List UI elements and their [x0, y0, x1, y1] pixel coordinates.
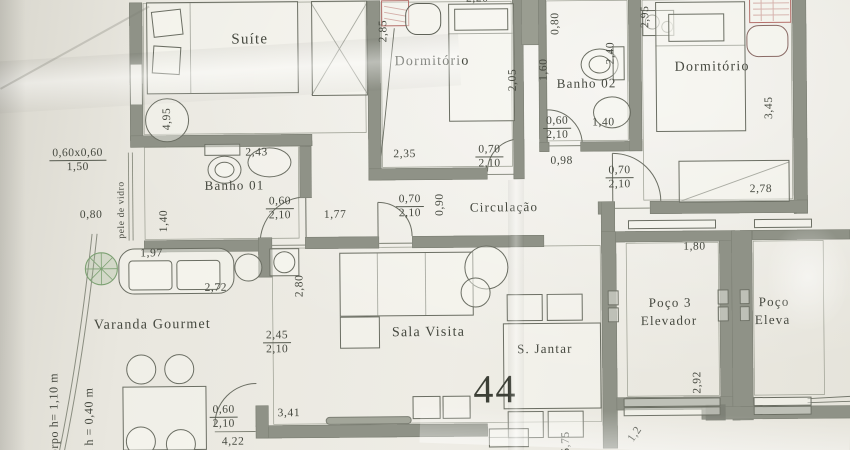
dim-sala-left: 2,80	[293, 275, 305, 298]
dim-dorm2-left-top: 2,95	[639, 5, 651, 28]
dim-value: 0,60	[543, 115, 571, 129]
dim-value: 2,10	[543, 129, 571, 142]
tree-symbol	[85, 253, 117, 285]
dim-value: 2,10	[210, 418, 238, 431]
room-label-poco3-line1: Poço 3	[649, 295, 692, 311]
dim-poco3-width: 1,80	[683, 241, 706, 253]
shaft-vent-slat	[754, 219, 812, 229]
furniture-floor-lamp-small	[460, 277, 490, 307]
shaft-vent-slat	[754, 406, 812, 416]
elevator-door-mark	[718, 289, 729, 304]
dim-door-circ: 0,70 2,10	[396, 193, 424, 221]
room-label-circulacao: Circulação	[470, 199, 538, 216]
elevator-door-mark	[740, 289, 750, 304]
dim-banho2-top: 0,80	[549, 12, 561, 35]
furniture-wardrobe-dorm2	[678, 160, 789, 203]
furniture-closet-suite	[311, 0, 368, 95]
furniture-sofa-sala	[339, 252, 474, 317]
pillow	[668, 13, 724, 41]
furniture-chair	[746, 25, 788, 57]
dim-sala-opening: 2,45 2,10	[263, 329, 291, 357]
dim-dorm2-depth: 3,45	[763, 96, 775, 119]
dim-value: 1,50	[49, 161, 106, 175]
wall-varanda-pillar	[256, 405, 269, 438]
wall-dorm1-bottom	[369, 167, 488, 180]
dim-circ-width: 0,90	[434, 193, 446, 216]
dim-door-banho1: 0,60 2,10	[266, 195, 294, 223]
dim-banho2-len: 2,40	[604, 42, 616, 65]
room-label-pocoeleva-line1: Poço	[759, 294, 790, 310]
annotation-pele-de-vidro: pele de vidro	[117, 181, 128, 238]
dim-value: 0,60	[266, 195, 294, 209]
chair	[126, 354, 156, 384]
furniture-side-table	[442, 396, 470, 419]
room-label-sala: Sala Visita	[392, 325, 465, 342]
dim-banho2-width: 1,60	[538, 58, 550, 81]
dim-varanda-left: 0,80	[80, 209, 103, 221]
dim-value: 0,70	[605, 164, 633, 178]
dim-value: 2,10	[475, 158, 503, 171]
dim-sala-width: 3,41	[278, 407, 301, 419]
dim-banho1-width: 1,40	[158, 210, 170, 233]
chair	[547, 294, 583, 321]
chair	[507, 294, 543, 321]
dim-value: 2,10	[606, 178, 634, 191]
dim-value: 0,70	[396, 193, 424, 207]
wall-eleva-top	[752, 229, 850, 240]
chair	[164, 354, 194, 384]
furniture-chair	[405, 3, 441, 35]
furniture-crib-red	[749, 0, 791, 23]
dim-door-banho2: 0,60 2,10	[543, 115, 571, 143]
floor-plan: Suíte Dormitório Banho 02 Dormitório Ban…	[0, 0, 850, 450]
room-label-banho02: Banho 02	[557, 75, 617, 92]
dim-varanda-width: 2,72	[204, 282, 227, 294]
dim-poco3-depth: 2,92	[691, 371, 703, 394]
dim-value: 2,10	[266, 209, 294, 222]
dim-dorm1-width: 2,35	[393, 148, 416, 160]
annotation-mureta: eta h = 0,40 m	[81, 387, 97, 450]
furniture-cistern	[204, 144, 240, 156]
dim-value: 2,45	[263, 329, 291, 343]
shaft-vent-slat	[628, 219, 716, 229]
dorm1-closet-line	[379, 28, 395, 162]
dim-dorm1-depth: 2,05	[507, 69, 519, 92]
sofa-chaise	[340, 316, 380, 348]
pillow	[454, 8, 508, 30]
furniture-sideboard	[326, 416, 412, 425]
wall-sala-bottom	[256, 423, 488, 438]
dim-varanda-len: 4,22	[222, 436, 245, 448]
furniture-side-table	[412, 396, 440, 419]
dim-banho1-len: 2,43	[245, 146, 268, 158]
dim-value: 0,60	[210, 404, 238, 418]
room-label-suite: Suíte	[231, 31, 268, 48]
wall-suite-left	[129, 2, 143, 147]
dim-dorm2-wardrobe: 2,78	[750, 183, 773, 195]
wall-poco3-top	[615, 230, 735, 242]
pillow	[152, 45, 182, 75]
room-label-sjantar: S. Jantar	[517, 341, 573, 357]
dim-dorm1-top: 2,20	[466, 0, 489, 5]
room-label-poco3-line2: Elevador	[641, 313, 698, 329]
dim-jantar-depth: 5,75	[560, 431, 572, 450]
room-label-dormitorio2: Dormitório	[675, 59, 750, 76]
elevator-door-mark	[740, 306, 750, 321]
wall-banho01-right	[299, 146, 311, 198]
dim-door-varanda: 0,60 2,10	[210, 404, 238, 432]
wall-band-b	[305, 236, 379, 249]
dim-value: 2,10	[396, 207, 424, 220]
wall-right-column	[601, 231, 618, 448]
sofa-cushion	[128, 260, 172, 290]
dim-varanda-sofa: 1,97	[140, 247, 163, 259]
cabinet-basin	[273, 251, 295, 273]
dim-value: 0,70	[475, 143, 503, 157]
dim-suite-depth: 4,95	[161, 108, 173, 131]
floor-plan-photo: Suíte Dormitório Banho 02 Dormitório Ban…	[0, 0, 850, 450]
elevator-door-mark	[718, 306, 729, 321]
elevator-door-mark	[608, 307, 619, 322]
dim-dorm1-left: 2,85	[377, 20, 389, 43]
dim-value: 0,60x0,60	[49, 147, 106, 162]
dim-banho2-basin: 1,40	[592, 116, 615, 128]
pillow	[151, 9, 184, 38]
furniture-dining-table	[503, 322, 602, 409]
room-label-pocoeleva-line2: Eleva	[755, 312, 791, 328]
chair	[126, 426, 156, 450]
dim-circ-len: 1,77	[324, 209, 347, 221]
dim-hall-len: 0,98	[550, 155, 573, 167]
furniture-side-table	[234, 253, 262, 281]
dim-door-dorm2: 0,70 2,10	[605, 164, 633, 192]
room-label-varanda: Varanda Gourmet	[94, 317, 211, 334]
dim-window-spec: 0,60x0,60 1,50	[49, 147, 106, 175]
dim-value: 2,10	[263, 343, 291, 356]
wall-dorm2-right-outer	[792, 0, 808, 214]
room-label-dormitorio1: Dormitório	[395, 54, 470, 71]
annotation-guarda-corpo: corpo h= 1,10 m	[46, 373, 62, 450]
wall-banho02-bottom-a	[539, 142, 549, 152]
shaft-vent-slat	[624, 406, 721, 416]
wall-shaft-middle	[731, 230, 754, 420]
dim-door-dorm1: 0,70 2,10	[475, 143, 503, 171]
toilet-bowl-inner	[214, 162, 234, 178]
entry-step	[489, 428, 529, 447]
room-label-banho01: Banho 01	[205, 177, 265, 194]
elevator-door-mark	[608, 290, 619, 305]
dim-bottom-partial: 1,2	[625, 424, 644, 444]
unit-number: 44	[473, 365, 517, 412]
